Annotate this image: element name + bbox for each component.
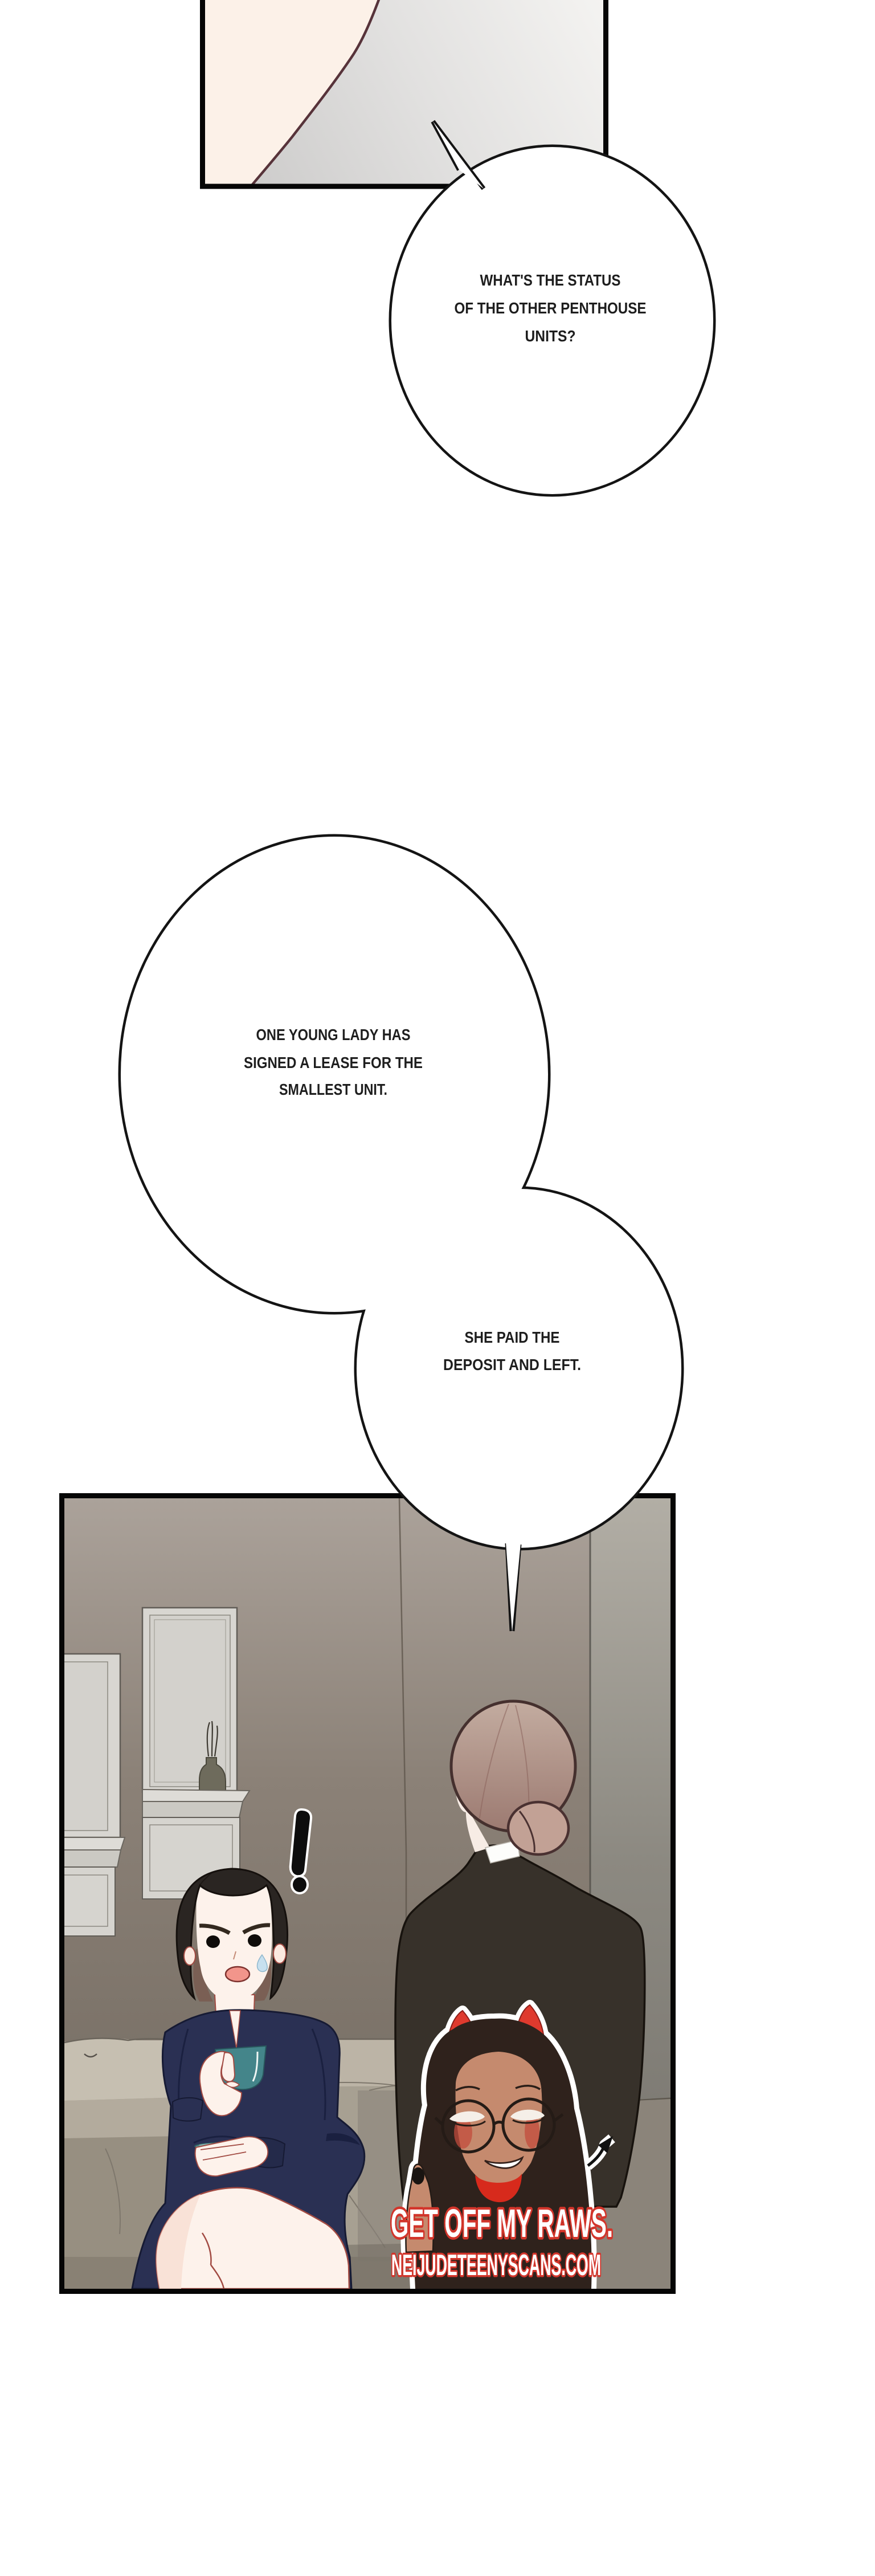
svg-text:SIGNED A LEASE FOR THE: SIGNED A LEASE FOR THE [244, 1054, 423, 1071]
svg-text:SMALLEST UNIT.: SMALLEST UNIT. [279, 1081, 387, 1098]
svg-text:NEIJUDETEENYSCANS.COM: NEIJUDETEENYSCANS.COM [391, 2248, 601, 2281]
svg-text:SHE PAID THE: SHE PAID THE [465, 1328, 560, 1346]
svg-text:WHAT'S THE STATUS: WHAT'S THE STATUS [480, 271, 621, 289]
svg-text:DEPOSIT AND LEFT.: DEPOSIT AND LEFT. [443, 1356, 581, 1373]
svg-text:GET OFF MY RAWS.: GET OFF MY RAWS. [391, 2202, 613, 2246]
svg-text:OF THE OTHER PENTHOUSE: OF THE OTHER PENTHOUSE [455, 299, 647, 317]
svg-text:UNITS?: UNITS? [525, 327, 576, 345]
svg-text:ONE YOUNG LADY HAS: ONE YOUNG LADY HAS [256, 1026, 411, 1044]
